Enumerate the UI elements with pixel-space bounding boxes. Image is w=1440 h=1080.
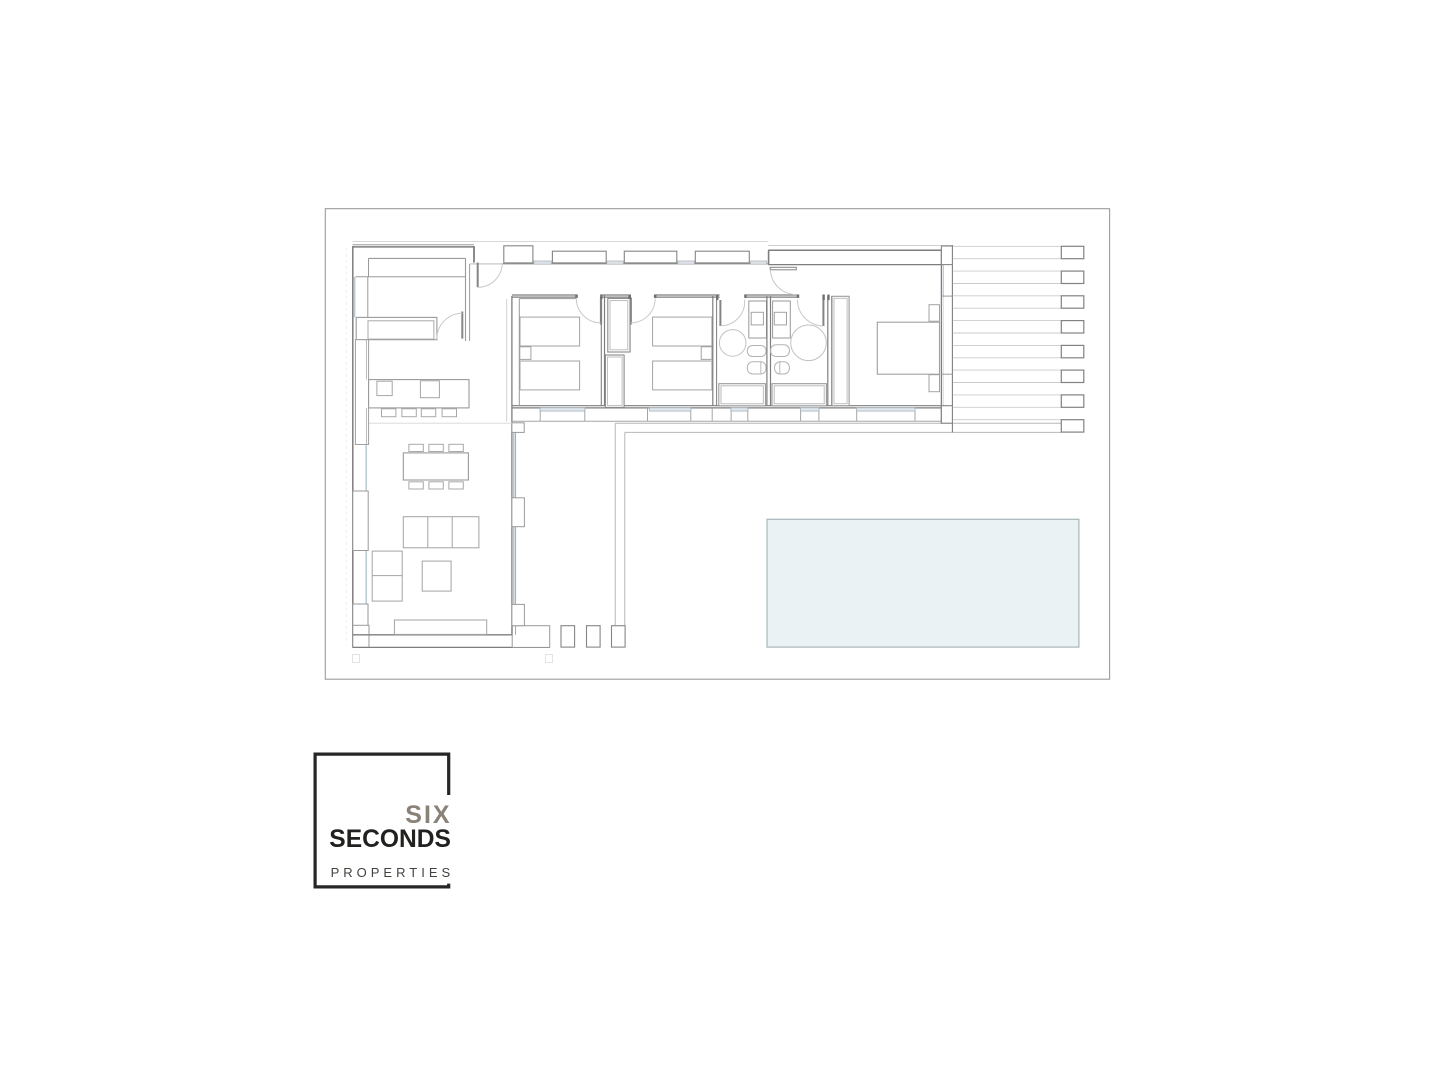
- svg-text:SIX: SIX: [405, 801, 451, 829]
- svg-text:PROPERTIES: PROPERTIES: [331, 865, 455, 880]
- svg-text:SECONDS: SECONDS: [329, 826, 451, 853]
